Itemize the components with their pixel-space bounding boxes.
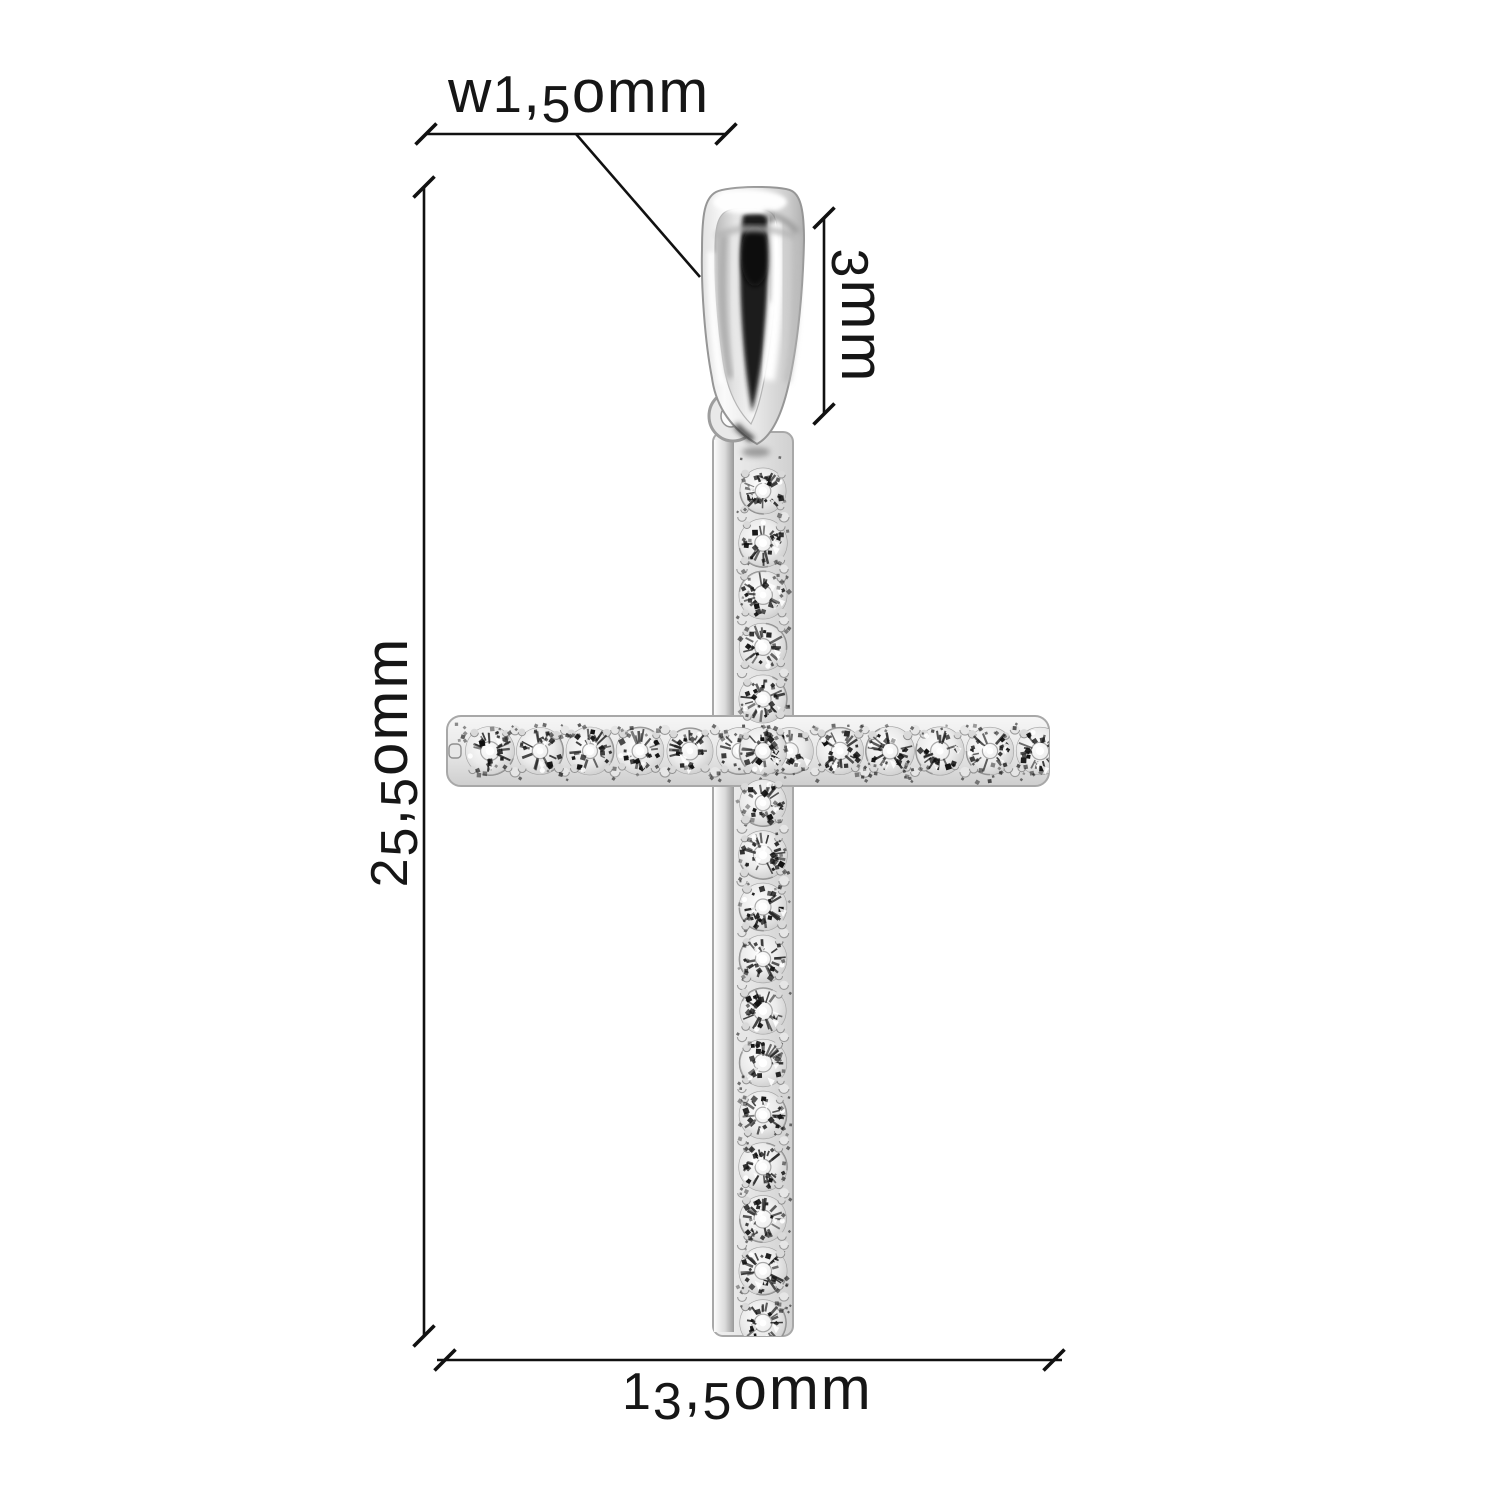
svg-text:w1,5omm: w1,5omm xyxy=(447,58,710,134)
